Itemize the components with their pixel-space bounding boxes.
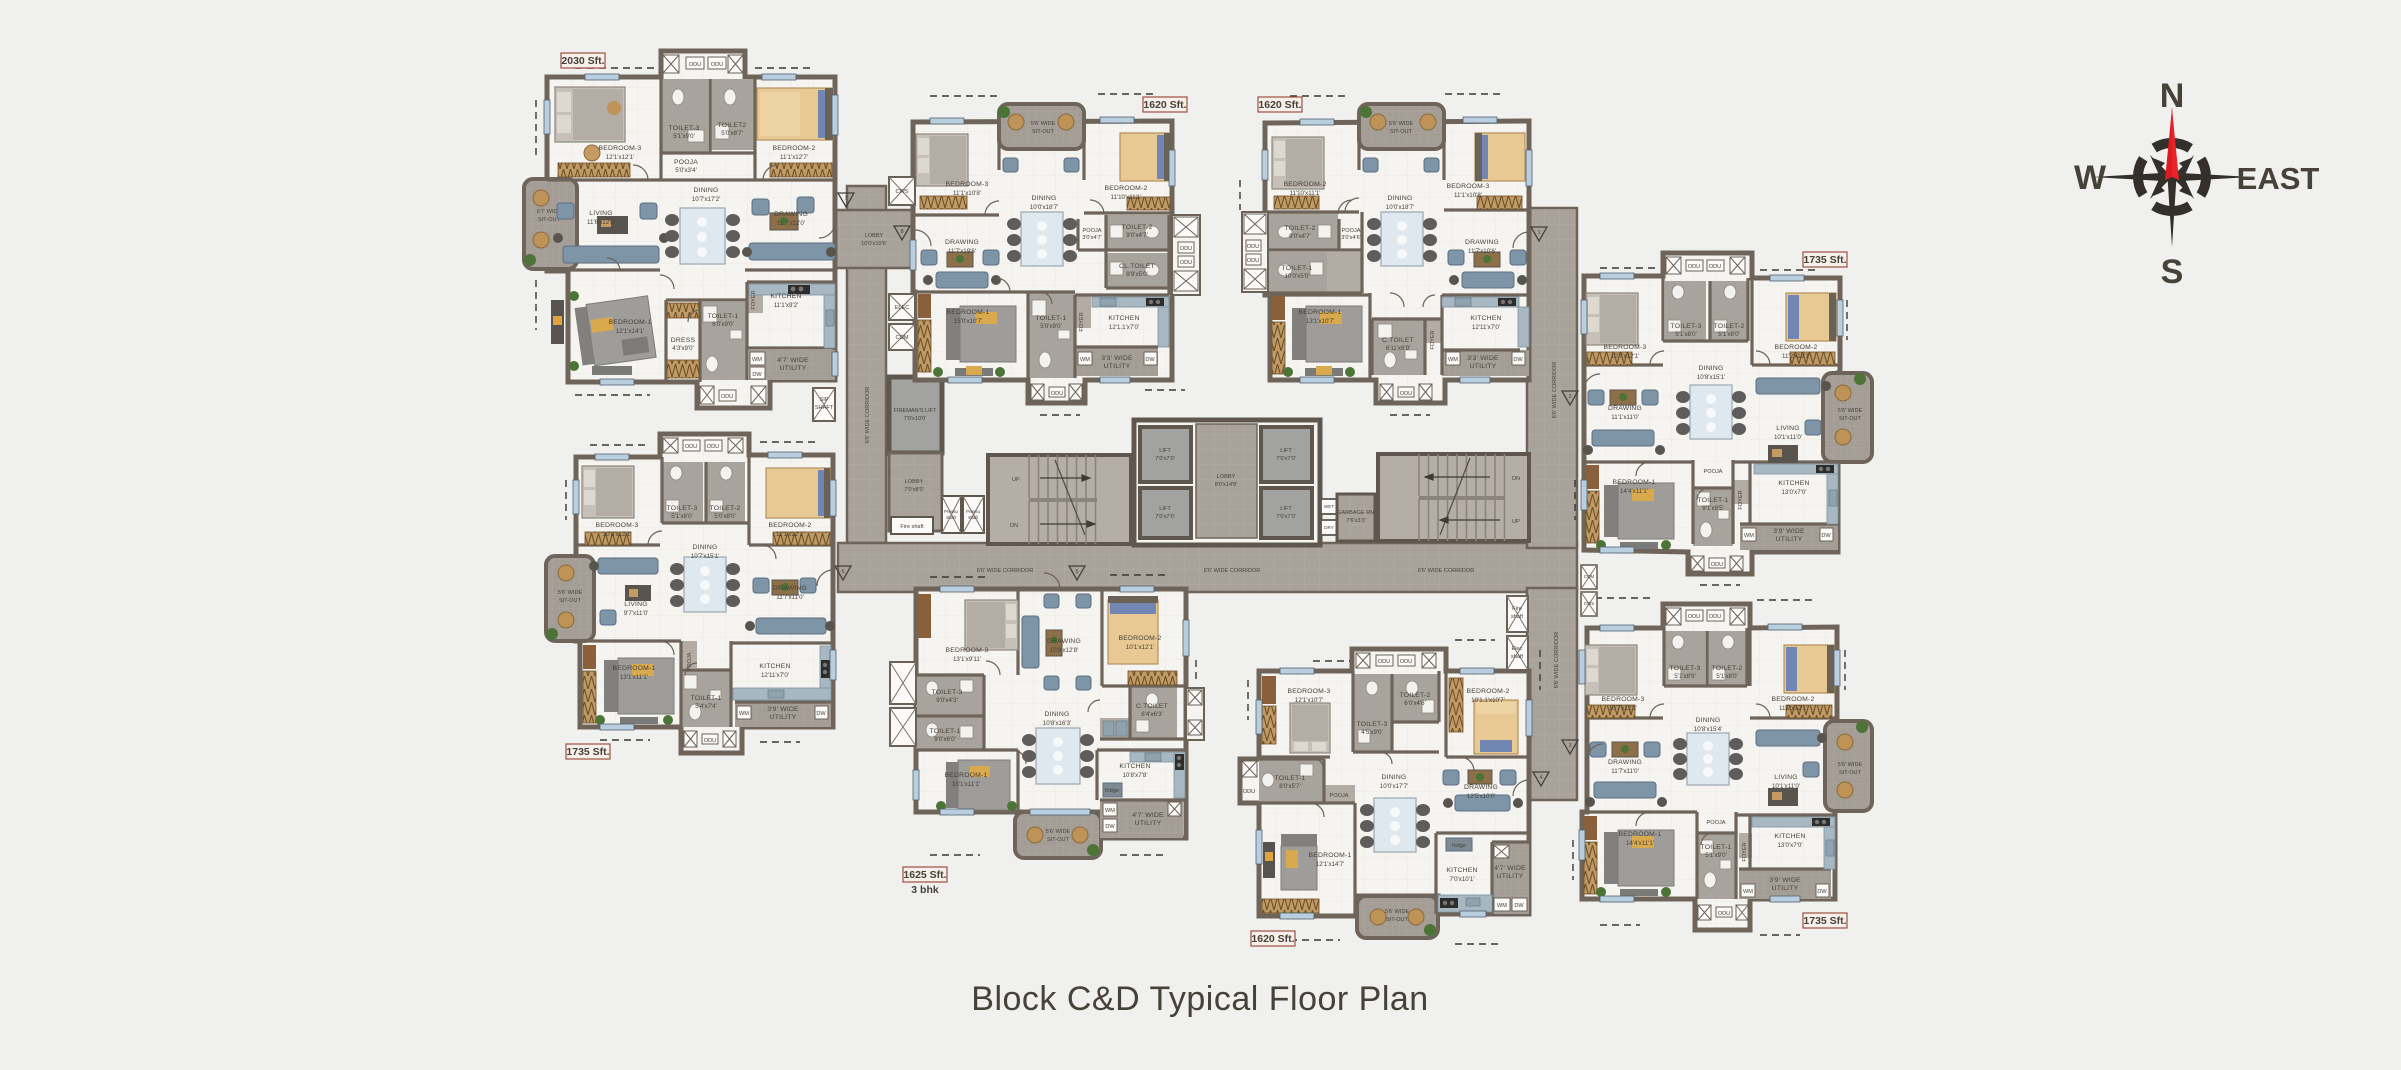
svg-text:CWS: CWS xyxy=(1584,601,1595,606)
svg-text:BEDROOM-3: BEDROOM-3 xyxy=(946,181,989,188)
svg-text:10'7'x12'1': 10'7'x12'1' xyxy=(1609,705,1637,712)
svg-text:TOILET-3: TOILET-3 xyxy=(667,505,698,512)
svg-text:7'0'x10'1': 7'0'x10'1' xyxy=(1449,876,1474,883)
svg-text:TOILET-2: TOILET-2 xyxy=(1400,692,1431,699)
svg-text:TOILET-3: TOILET-3 xyxy=(932,689,963,696)
svg-text:DINING: DINING xyxy=(1696,717,1721,724)
svg-text:3'9' WIDE: 3'9' WIDE xyxy=(1769,877,1801,884)
svg-text:12'1'x14'1': 12'1'x14'1' xyxy=(616,328,644,335)
svg-text:1735 Sft.: 1735 Sft. xyxy=(1803,254,1846,266)
svg-text:15'0'x10'7': 15'0'x10'7' xyxy=(954,318,982,325)
svg-text:FOYER: FOYER xyxy=(751,290,757,309)
svg-text:12'11'x7'0': 12'11'x7'0' xyxy=(1472,324,1500,331)
svg-text:SIT-OUT: SIT-OUT xyxy=(1047,837,1070,843)
svg-text:7'0'x7'0': 7'0'x7'0' xyxy=(1276,456,1296,462)
svg-text:LIVING: LIVING xyxy=(1774,774,1798,781)
svg-text:5'6' WIDE: 5'6' WIDE xyxy=(1046,829,1071,835)
svg-text:5'1'x8'0': 5'1'x8'0' xyxy=(1718,331,1740,338)
svg-text:ODU: ODU xyxy=(1709,264,1721,270)
svg-text:4'3'x9'0': 4'3'x9'0' xyxy=(672,345,694,352)
svg-text:9'1'x9'5': 9'1'x9'5' xyxy=(1702,505,1724,512)
svg-text:DINING: DINING xyxy=(1699,365,1724,372)
svg-text:BEDROOM-2: BEDROOM-2 xyxy=(1772,696,1815,703)
svg-text:4'7' WIDE: 4'7' WIDE xyxy=(1132,812,1164,819)
svg-text:DN: DN xyxy=(1512,476,1520,482)
svg-text:7'0'x7'0': 7'0'x7'0' xyxy=(1155,456,1175,462)
svg-text:6: 6 xyxy=(841,569,844,575)
svg-text:TOILET-2: TOILET-2 xyxy=(710,505,741,512)
svg-text:6'6' WIDE CORRIDOR: 6'6' WIDE CORRIDOR xyxy=(865,387,871,444)
svg-text:POOJA: POOJA xyxy=(674,159,698,166)
svg-text:10'0'x10'6': 10'0'x10'6' xyxy=(861,241,887,247)
svg-text:9'0'x4'7': 9'0'x4'7' xyxy=(1126,232,1148,239)
svg-text:UP: UP xyxy=(1012,477,1020,483)
svg-text:CWS: CWS xyxy=(895,189,908,195)
svg-text:BEDROOM-3: BEDROOM-3 xyxy=(1288,688,1331,695)
svg-text:KITCHEN: KITCHEN xyxy=(1119,763,1150,770)
svg-text:TOILET-3: TOILET-3 xyxy=(1671,323,1702,330)
svg-text:11'6'x12'0': 11'6'x12'0' xyxy=(587,219,615,226)
svg-text:DRAWING: DRAWING xyxy=(774,211,808,218)
svg-text:11'10'x11'1': 11'10'x11'1' xyxy=(1290,190,1321,197)
svg-text:POOJA: POOJA xyxy=(1342,228,1361,234)
svg-text:8: 8 xyxy=(900,229,903,235)
svg-text:UTILITY: UTILITY xyxy=(770,714,797,721)
svg-text:BEDROOM-2: BEDROOM-2 xyxy=(769,522,812,529)
svg-text:6'6' WIDE CORRIDOR: 6'6' WIDE CORRIDOR xyxy=(1552,362,1558,419)
svg-text:TOILET-1: TOILET-1 xyxy=(1698,497,1729,504)
svg-text:DRAWING: DRAWING xyxy=(945,239,979,246)
svg-text:BEDROOM-2: BEDROOM-2 xyxy=(1775,344,1818,351)
svg-text:BEDROOM-1: BEDROOM-1 xyxy=(1619,831,1662,838)
svg-text:6'6' WIDE CORRIDOR: 6'6' WIDE CORRIDOR xyxy=(1418,568,1475,574)
svg-text:LIFT: LIFT xyxy=(1280,506,1292,512)
svg-text:3'9' WIDE: 3'9' WIDE xyxy=(1773,528,1805,535)
svg-text:DW: DW xyxy=(1145,357,1155,363)
svg-text:12'1'x10'7': 12'1'x10'7' xyxy=(1295,697,1323,704)
svg-text:5'1'x8'0': 5'1'x8'0' xyxy=(1716,673,1738,680)
svg-text:6'0'x4'6': 6'0'x4'6' xyxy=(1404,700,1426,707)
svg-text:BEDROOM-3: BEDROOM-3 xyxy=(596,522,639,529)
svg-text:ODU: ODU xyxy=(1243,789,1255,795)
svg-text:Block C&D Typical Floor Plan: Block C&D Typical Floor Plan xyxy=(971,980,1428,1018)
svg-text:12'1'x12'1': 12'1'x12'1' xyxy=(606,154,634,161)
svg-text:DRAWING: DRAWING xyxy=(773,585,807,592)
svg-text:EAST: EAST xyxy=(2237,161,2320,196)
svg-text:DINING: DINING xyxy=(1382,774,1407,781)
svg-text:10'8'x12'1': 10'8'x12'1' xyxy=(603,531,631,538)
svg-text:TOILET-1: TOILET-1 xyxy=(708,313,739,320)
svg-text:13'1'x10'7': 13'1'x10'7' xyxy=(1306,318,1334,325)
svg-text:10'8'x16'3': 10'8'x16'3' xyxy=(1043,720,1071,727)
svg-text:DW: DW xyxy=(816,711,826,717)
svg-text:TOILET-2: TOILET-2 xyxy=(1285,225,1316,232)
svg-text:UTILITY: UTILITY xyxy=(1497,873,1524,880)
svg-text:1735 Sft.: 1735 Sft. xyxy=(566,746,609,758)
svg-text:8'0'x14'8': 8'0'x14'8' xyxy=(1215,482,1238,488)
svg-text:UTILITY: UTILITY xyxy=(1104,363,1131,370)
svg-text:KITCHEN: KITCHEN xyxy=(1774,833,1805,840)
svg-text:7'0'x10'0': 7'0'x10'0' xyxy=(904,416,927,422)
svg-text:5'1'x9'0': 5'1'x9'0' xyxy=(673,133,695,140)
svg-text:FOYER: FOYER xyxy=(1738,490,1744,509)
svg-text:ODU: ODU xyxy=(689,62,701,68)
svg-text:CL.TOILET: CL.TOILET xyxy=(1119,263,1155,270)
svg-text:5'1'x8'0': 5'1'x8'0' xyxy=(1675,331,1697,338)
svg-text:TOILET-1: TOILET-1 xyxy=(691,695,722,702)
svg-text:TOILET-1: TOILET-1 xyxy=(1282,265,1313,272)
svg-text:BEDROOM-1: BEDROOM-1 xyxy=(1309,852,1352,859)
svg-text:LIFT: LIFT xyxy=(1159,448,1171,454)
svg-text:1620 Sft.: 1620 Sft. xyxy=(1258,99,1301,111)
svg-text:S: S xyxy=(2161,253,2184,291)
svg-text:DRAWING: DRAWING xyxy=(1465,239,1499,246)
svg-text:ODU: ODU xyxy=(704,738,716,744)
svg-text:POOJA: POOJA xyxy=(1704,469,1723,475)
svg-text:UP: UP xyxy=(1512,519,1520,525)
svg-text:WM: WM xyxy=(1744,533,1754,539)
svg-text:Pressu: Pressu xyxy=(944,509,959,514)
svg-text:LOBBY: LOBBY xyxy=(905,479,924,485)
svg-text:ODU: ODU xyxy=(1709,614,1721,620)
svg-text:KITCHEN: KITCHEN xyxy=(759,663,790,670)
svg-text:4'7' WIDE: 4'7' WIDE xyxy=(777,357,809,364)
svg-text:12'1'x14'7': 12'1'x14'7' xyxy=(1316,861,1344,868)
svg-text:SIT-OUT: SIT-OUT xyxy=(1839,416,1862,422)
svg-text:11'10'x11'1': 11'10'x11'1' xyxy=(1111,194,1142,201)
svg-text:10'7'x15'1': 10'7'x15'1' xyxy=(691,553,719,560)
svg-text:DW: DW xyxy=(1817,889,1827,895)
svg-text:BEDROOM-1: BEDROOM-1 xyxy=(609,319,652,326)
svg-text:KITCHEN: KITCHEN xyxy=(1108,315,1139,322)
svg-text:3'3' WIDE: 3'3' WIDE xyxy=(1467,355,1499,362)
svg-text:10'1'x12'1': 10'1'x12'1' xyxy=(1126,644,1154,651)
svg-text:TOILET-2: TOILET-2 xyxy=(1122,224,1153,231)
svg-text:DW: DW xyxy=(1105,824,1115,830)
svg-text:13'1'x11'1': 13'1'x11'1' xyxy=(620,674,648,681)
svg-text:13'1'x9'11': 13'1'x9'11' xyxy=(953,656,981,663)
svg-text:10'0'x18'7': 10'0'x18'7' xyxy=(1030,204,1058,211)
svg-text:DRESS: DRESS xyxy=(671,337,696,344)
svg-text:13'0'x7'0': 13'0'x7'0' xyxy=(1781,489,1806,496)
svg-text:5'1'x8'0': 5'1'x8'0' xyxy=(671,513,693,520)
svg-text:shaft: shaft xyxy=(968,515,979,520)
svg-text:5'1'x8'9': 5'1'x8'9' xyxy=(1674,673,1696,680)
svg-text:1620 Sft.: 1620 Sft. xyxy=(1143,99,1186,111)
svg-text:WM: WM xyxy=(1448,357,1458,363)
svg-text:10'0'x5'0': 10'0'x5'0' xyxy=(1284,273,1309,280)
svg-text:LIFT: LIFT xyxy=(1159,506,1171,512)
svg-text:5'4'x7'4': 5'4'x7'4' xyxy=(695,703,717,710)
svg-text:5'0'x8'7': 5'0'x8'7' xyxy=(721,130,743,137)
svg-text:5'6' WIDE: 5'6' WIDE xyxy=(1031,121,1056,127)
svg-text:11'1'x12'7': 11'1'x12'7' xyxy=(780,154,808,161)
svg-text:6'11'x6'9': 6'11'x6'9' xyxy=(1386,345,1411,352)
svg-text:11'7'x11'0': 11'7'x11'0' xyxy=(1611,768,1639,775)
svg-text:KITCHEN: KITCHEN xyxy=(1446,867,1477,874)
svg-text:1625 Sft.: 1625 Sft. xyxy=(903,869,946,881)
svg-text:WM: WM xyxy=(1105,808,1115,814)
svg-text:5: 5 xyxy=(1075,569,1078,575)
svg-text:SIT-OUT: SIT-OUT xyxy=(1839,770,1862,776)
svg-text:DRAWING: DRAWING xyxy=(1047,638,1081,645)
svg-text:11'7'x10'6': 11'7'x10'6' xyxy=(1468,248,1496,255)
svg-text:LOBBY: LOBBY xyxy=(865,233,884,239)
svg-text:SIT-OUT: SIT-OUT xyxy=(559,598,582,604)
svg-text:6'6' WIDE CORRIDOR: 6'6' WIDE CORRIDOR xyxy=(1554,632,1560,689)
svg-text:10'8'x15'4': 10'8'x15'4' xyxy=(1694,726,1722,733)
svg-text:BEDROOM-3: BEDROOM-3 xyxy=(946,647,989,654)
svg-text:COM: COM xyxy=(895,335,908,341)
svg-text:7'6'x3'3': 7'6'x3'3' xyxy=(1346,518,1366,524)
svg-text:WM: WM xyxy=(739,711,749,717)
svg-text:ODU: ODU xyxy=(1718,911,1730,917)
svg-text:ODU: ODU xyxy=(1051,391,1063,397)
svg-text:BEDROOM-3: BEDROOM-3 xyxy=(1447,183,1490,190)
svg-text:DW: DW xyxy=(1513,357,1523,363)
svg-text:UTILITY: UTILITY xyxy=(1772,885,1799,892)
svg-text:BEDROOM-1: BEDROOM-1 xyxy=(613,665,656,672)
svg-text:SIT-OUT: SIT-OUT xyxy=(1390,129,1413,135)
svg-text:5'0'x8'0': 5'0'x8'0' xyxy=(714,513,736,520)
svg-text:DINING: DINING xyxy=(1388,195,1413,202)
svg-text:SIP: SIP xyxy=(819,397,828,403)
svg-text:DW: DW xyxy=(752,372,762,378)
svg-text:GARBAGE RM: GARBAGE RM xyxy=(1337,510,1375,516)
svg-text:DRAWING: DRAWING xyxy=(1608,759,1642,766)
svg-text:Elec: Elec xyxy=(1512,646,1523,652)
svg-text:5'0'x3'4': 5'0'x3'4' xyxy=(675,167,697,174)
svg-text:12'1.1'x7'0': 12'1.1'x7'0' xyxy=(1109,324,1139,331)
svg-text:N: N xyxy=(2160,77,2185,115)
svg-text:SIT-OUT: SIT-OUT xyxy=(1032,129,1055,135)
svg-text:TOILET-3: TOILET-3 xyxy=(1357,721,1388,728)
svg-text:10'7'x12'1': 10'7'x12'1' xyxy=(1611,353,1639,360)
svg-text:3: 3 xyxy=(1568,743,1571,749)
svg-text:WM: WM xyxy=(752,357,762,363)
svg-text:TOILET-1: TOILET-1 xyxy=(930,728,961,735)
svg-text:DRAWING: DRAWING xyxy=(1464,784,1498,791)
svg-text:ODU: ODU xyxy=(1711,562,1723,568)
svg-text:4'7' WIDE: 4'7' WIDE xyxy=(1494,865,1526,872)
svg-text:COM: COM xyxy=(1584,574,1595,579)
svg-text:14'4'x11'1': 14'4'x11'1' xyxy=(1626,840,1654,847)
svg-text:UTILITY: UTILITY xyxy=(1135,820,1162,827)
svg-text:WM: WM xyxy=(1743,889,1753,895)
svg-text:DINING: DINING xyxy=(693,544,718,551)
svg-text:DW: DW xyxy=(1821,533,1831,539)
svg-text:fridge: fridge xyxy=(1452,843,1466,849)
svg-text:POOJA: POOJA xyxy=(1707,820,1726,826)
svg-text:1735 Sft.: 1735 Sft. xyxy=(1803,915,1846,927)
svg-text:2030 Sft.: 2030 Sft. xyxy=(561,55,604,67)
svg-text:13'1'x11'1': 13'1'x11'1' xyxy=(952,781,980,788)
svg-text:3'3' WIDE: 3'3' WIDE xyxy=(1101,355,1133,362)
svg-text:ODU: ODU xyxy=(1400,659,1412,665)
svg-text:ODU: ODU xyxy=(685,444,697,450)
svg-text:DINING: DINING xyxy=(1032,195,1057,202)
svg-text:7'0'x7'0': 7'0'x7'0' xyxy=(1276,514,1296,520)
svg-text:12'5'x10'0': 12'5'x10'0' xyxy=(1467,793,1495,800)
svg-text:11'7'x12'0': 11'7'x12'0' xyxy=(777,220,805,227)
svg-text:10'8'x12'8': 10'8'x12'8' xyxy=(1050,647,1078,654)
svg-text:5'6' WIDE: 5'6' WIDE xyxy=(1838,762,1863,768)
svg-text:POOJA: POOJA xyxy=(1330,793,1349,799)
svg-text:TOILET-3: TOILET-3 xyxy=(669,125,700,132)
svg-text:11'1'x12'1': 11'1'x12'1' xyxy=(776,531,804,538)
svg-text:LIVING: LIVING xyxy=(1776,425,1800,432)
svg-text:3'0'x4'7': 3'0'x4'7' xyxy=(1082,235,1102,241)
svg-text:KITCHEN: KITCHEN xyxy=(770,293,801,300)
svg-text:11'2'x12'1': 11'2'x12'1' xyxy=(1779,705,1807,712)
svg-text:13'0'x7'0': 13'0'x7'0' xyxy=(1777,842,1802,849)
svg-text:LIVING: LIVING xyxy=(589,210,613,217)
svg-text:3'9' WIDE: 3'9' WIDE xyxy=(767,706,799,713)
svg-text:14'4'x11'1': 14'4'x11'1' xyxy=(1620,488,1648,495)
svg-text:BEDROOM-1: BEDROOM-1 xyxy=(1299,309,1342,316)
svg-text:LOBBY: LOBBY xyxy=(1217,474,1236,480)
svg-text:Fire shaft: Fire shaft xyxy=(900,524,924,530)
svg-text:7: 7 xyxy=(844,196,847,202)
svg-text:ODU: ODU xyxy=(1378,659,1390,665)
svg-text:ODU: ODU xyxy=(1180,246,1192,252)
svg-text:BEDROOM-1: BEDROOM-1 xyxy=(945,772,988,779)
svg-text:9'7'x11'0': 9'7'x11'0' xyxy=(624,610,649,617)
svg-text:DRAWING: DRAWING xyxy=(1608,405,1642,412)
svg-text:10'1.1'x10'7': 10'1.1'x10'7' xyxy=(1471,697,1505,704)
svg-text:5'0'x9'0': 5'0'x9'0' xyxy=(1040,323,1062,330)
svg-text:6'6' WIDE CORRIDOR: 6'6' WIDE CORRIDOR xyxy=(977,568,1034,574)
svg-text:DW: DW xyxy=(1514,903,1524,909)
svg-text:shaft: shaft xyxy=(946,515,957,520)
svg-text:11'7'x19'6': 11'7'x19'6' xyxy=(948,248,976,255)
svg-text:C.TOILET: C.TOILET xyxy=(1136,703,1168,710)
svg-text:BEDROOM-3: BEDROOM-3 xyxy=(1604,344,1647,351)
svg-text:TOILET-3: TOILET-3 xyxy=(1670,665,1701,672)
svg-text:ELEC: ELEC xyxy=(895,305,910,311)
svg-text:11'1'x9'2': 11'1'x9'2' xyxy=(774,302,799,309)
svg-text:TOILET-1: TOILET-1 xyxy=(1275,775,1306,782)
svg-text:10'8'x15'1': 10'8'x15'1' xyxy=(1697,374,1725,381)
svg-text:ODU: ODU xyxy=(707,444,719,450)
svg-text:5'6' WIDE: 5'6' WIDE xyxy=(1389,121,1414,127)
svg-text:POOJA: POOJA xyxy=(1083,228,1102,234)
svg-text:9'0'x4'7': 9'0'x4'7' xyxy=(1289,233,1311,240)
svg-text:FOYER: FOYER xyxy=(1079,312,1085,331)
svg-text:SHAFT: SHAFT xyxy=(815,405,834,411)
svg-text:UTILITY: UTILITY xyxy=(780,365,807,372)
svg-text:shaft: shaft xyxy=(1511,654,1524,660)
svg-text:BEDROOM-2: BEDROOM-2 xyxy=(1467,688,1510,695)
svg-text:UTILITY: UTILITY xyxy=(1776,536,1803,543)
svg-text:ODU: ODU xyxy=(1180,260,1192,266)
svg-text:fridge: fridge xyxy=(1105,788,1119,794)
svg-text:1: 1 xyxy=(1537,230,1540,236)
svg-text:DN: DN xyxy=(1010,523,1018,529)
svg-text:LIVING: LIVING xyxy=(624,601,648,608)
svg-text:ODU: ODU xyxy=(1400,391,1412,397)
svg-text:POOJA: POOJA xyxy=(687,652,693,671)
svg-text:WM: WM xyxy=(1080,357,1090,363)
svg-text:3 bhk: 3 bhk xyxy=(911,884,939,896)
svg-text:10'1'x11'0': 10'1'x11'0' xyxy=(1772,783,1800,790)
svg-text:10'0'x17'7': 10'0'x17'7' xyxy=(1380,783,1408,790)
svg-text:BEDROOM-2: BEDROOM-2 xyxy=(773,145,816,152)
svg-text:TOILET-1: TOILET-1 xyxy=(1701,844,1732,851)
svg-text:10'8'x7'8': 10'8'x7'8' xyxy=(1122,772,1147,779)
svg-text:DINING: DINING xyxy=(694,187,719,194)
svg-text:12'11'x7'0': 12'11'x7'0' xyxy=(761,672,789,679)
svg-text:TOILET-2: TOILET-2 xyxy=(1714,323,1745,330)
svg-text:3'0'x4'6': 3'0'x4'6' xyxy=(1341,235,1361,241)
svg-text:9'0'x4'3': 9'0'x4'3' xyxy=(936,697,958,704)
svg-text:10'1'x11'0': 10'1'x11'0' xyxy=(1774,434,1802,441)
svg-text:10'7'x17'2': 10'7'x17'2' xyxy=(692,196,720,203)
svg-text:BEDROOM-2: BEDROOM-2 xyxy=(1105,185,1148,192)
svg-text:TOILET2: TOILET2 xyxy=(718,122,747,129)
svg-text:5'1'x9'0': 5'1'x9'0' xyxy=(1705,852,1727,859)
svg-text:ODU: ODU xyxy=(721,394,733,400)
svg-text:6'6' WIDE CORRIDOR: 6'6' WIDE CORRIDOR xyxy=(1204,568,1261,574)
svg-text:ODU: ODU xyxy=(1688,264,1700,270)
svg-text:FIREMAN'S LIFT: FIREMAN'S LIFT xyxy=(893,408,937,414)
svg-text:9'0'x6'0': 9'0'x6'0' xyxy=(934,736,956,743)
svg-text:1620 Sft.: 1620 Sft. xyxy=(1251,933,1294,945)
svg-text:WM: WM xyxy=(1497,903,1507,909)
svg-text:2: 2 xyxy=(1568,394,1571,400)
svg-text:LIFT: LIFT xyxy=(1280,448,1292,454)
svg-text:6'0'x9'0': 6'0'x9'0' xyxy=(712,321,734,328)
svg-text:shaft: shaft xyxy=(1511,614,1524,620)
svg-text:WET: WET xyxy=(1324,504,1334,509)
svg-text:8'9'x5'0': 8'9'x5'0' xyxy=(1126,271,1148,278)
svg-text:11'1'x11'0': 11'1'x11'0' xyxy=(1611,414,1639,421)
svg-text:BEDROOM-3: BEDROOM-3 xyxy=(1602,696,1645,703)
svg-text:ODU: ODU xyxy=(1247,258,1259,264)
svg-text:7'0'x7'0': 7'0'x7'0' xyxy=(1155,514,1175,520)
svg-text:8'0'x5'7': 8'0'x5'7' xyxy=(1279,783,1301,790)
svg-text:Pressu: Pressu xyxy=(966,509,981,514)
svg-text:11'1'x10'8': 11'1'x10'8' xyxy=(953,190,981,197)
svg-text:ODU: ODU xyxy=(1688,614,1700,620)
svg-text:5'6' WIDE: 5'6' WIDE xyxy=(1838,408,1863,414)
svg-text:BEDROOM-2: BEDROOM-2 xyxy=(1284,181,1327,188)
svg-text:BEDROOM-1: BEDROOM-1 xyxy=(947,309,990,316)
svg-text:DRY: DRY xyxy=(1324,525,1333,530)
svg-text:4: 4 xyxy=(1539,775,1542,781)
svg-text:SIT-OUT: SIT-OUT xyxy=(1386,917,1409,923)
svg-text:ODU: ODU xyxy=(711,62,723,68)
svg-text:TOILET-2: TOILET-2 xyxy=(1712,665,1743,672)
svg-text:11'7'x11'0': 11'7'x11'0' xyxy=(776,594,804,601)
svg-text:KITCHEN: KITCHEN xyxy=(1470,315,1501,322)
svg-text:DINING: DINING xyxy=(1045,711,1070,718)
svg-text:10'0'x18'7': 10'0'x18'7' xyxy=(1386,204,1414,211)
svg-text:FOYER: FOYER xyxy=(1430,330,1436,349)
svg-text:4'5'x9'0': 4'5'x9'0' xyxy=(1361,729,1383,736)
svg-text:W: W xyxy=(2074,159,2107,197)
svg-text:BEDROOM-3: BEDROOM-3 xyxy=(599,145,642,152)
svg-text:6'4'x6'3': 6'4'x6'3' xyxy=(1141,711,1163,718)
svg-text:UTILITY: UTILITY xyxy=(1470,363,1497,370)
svg-text:7'0'x8'0': 7'0'x8'0' xyxy=(904,487,924,493)
svg-text:Fire: Fire xyxy=(1512,606,1522,612)
svg-text:BEDROOM-1: BEDROOM-1 xyxy=(1613,479,1656,486)
svg-text:11'2'x12'1': 11'2'x12'1' xyxy=(1782,353,1810,360)
svg-text:C.TOILET: C.TOILET xyxy=(1382,337,1414,344)
svg-text:BEDROOM-2: BEDROOM-2 xyxy=(1119,635,1162,642)
svg-text:FOYER: FOYER xyxy=(1742,842,1748,861)
